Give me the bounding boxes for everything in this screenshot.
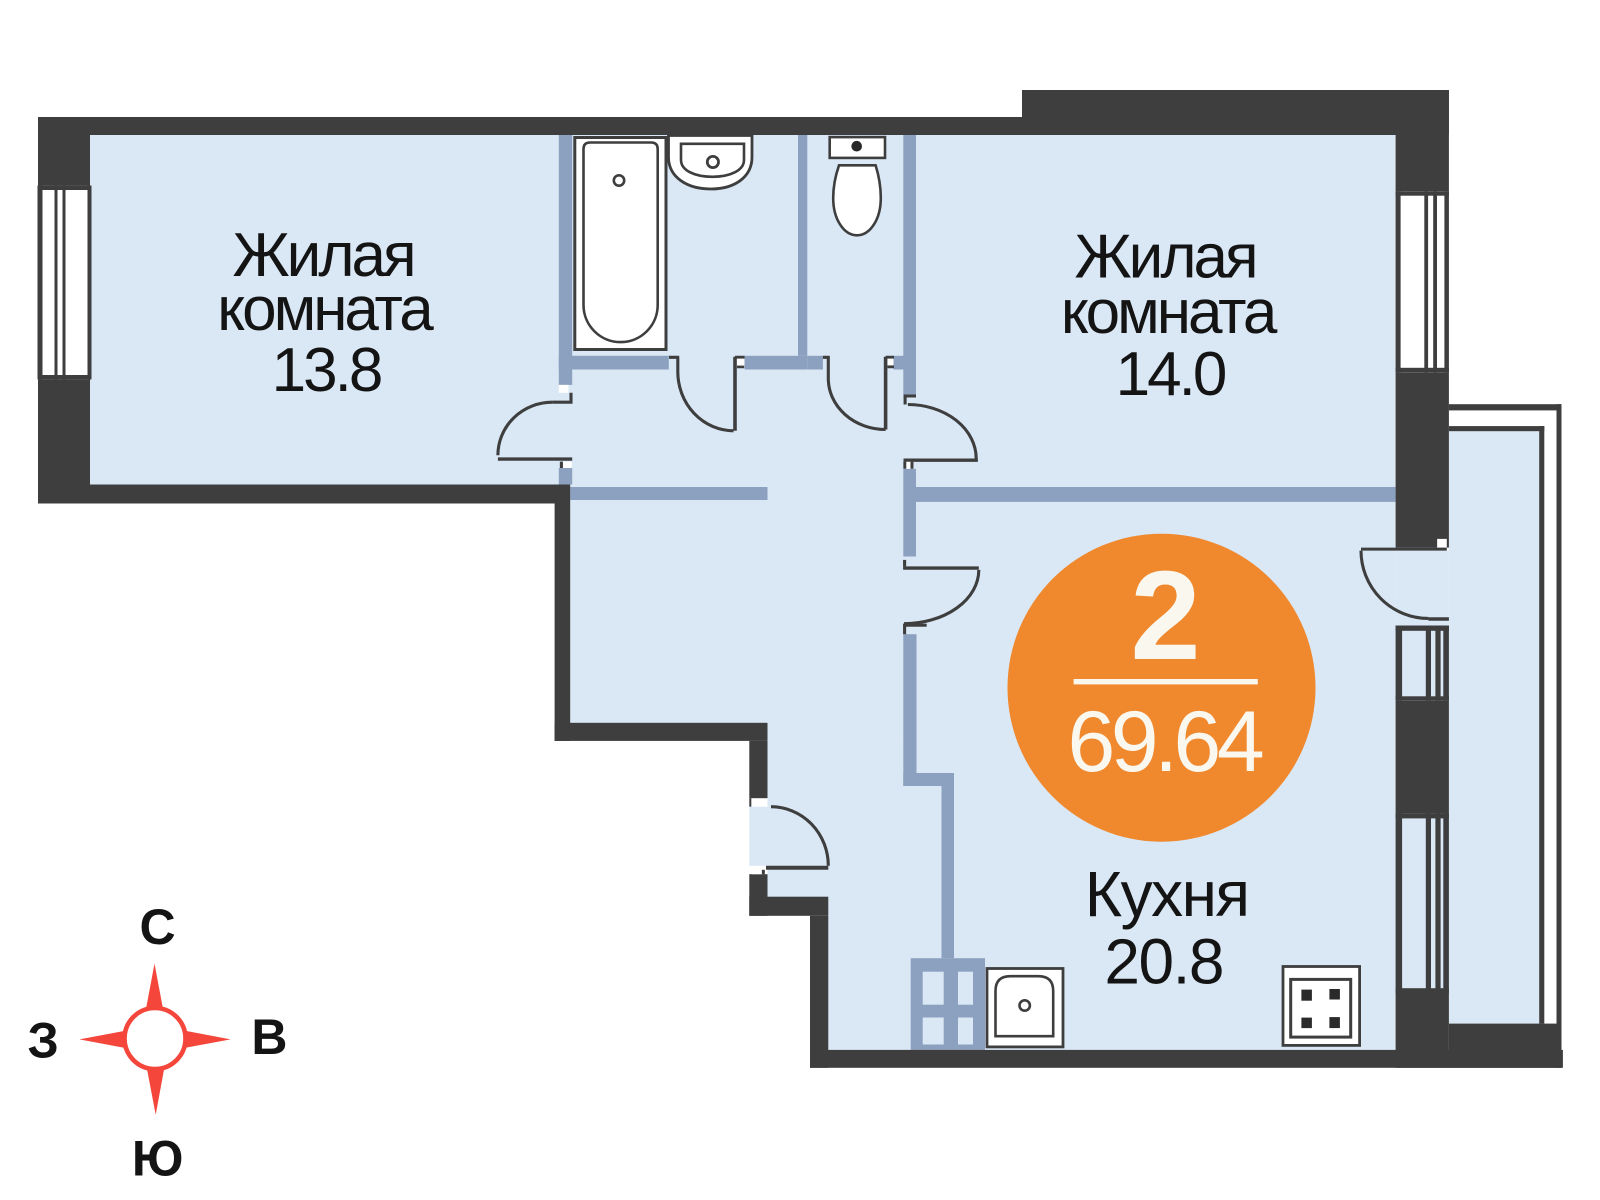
svg-text:В: В (251, 1009, 287, 1065)
svg-text:13.8: 13.8 (272, 336, 381, 405)
svg-text:Кухня: Кухня (1085, 858, 1249, 930)
svg-text:14.0: 14.0 (1116, 340, 1226, 409)
svg-text:З: З (28, 1012, 59, 1068)
svg-text:20.8: 20.8 (1104, 925, 1223, 997)
svg-text:69.64: 69.64 (1067, 694, 1262, 790)
svg-text:комната: комната (1061, 278, 1278, 347)
svg-text:комната: комната (217, 275, 434, 344)
svg-text:С: С (140, 899, 176, 955)
svg-text:Ю: Ю (132, 1131, 184, 1187)
svg-text:2: 2 (1130, 545, 1200, 686)
